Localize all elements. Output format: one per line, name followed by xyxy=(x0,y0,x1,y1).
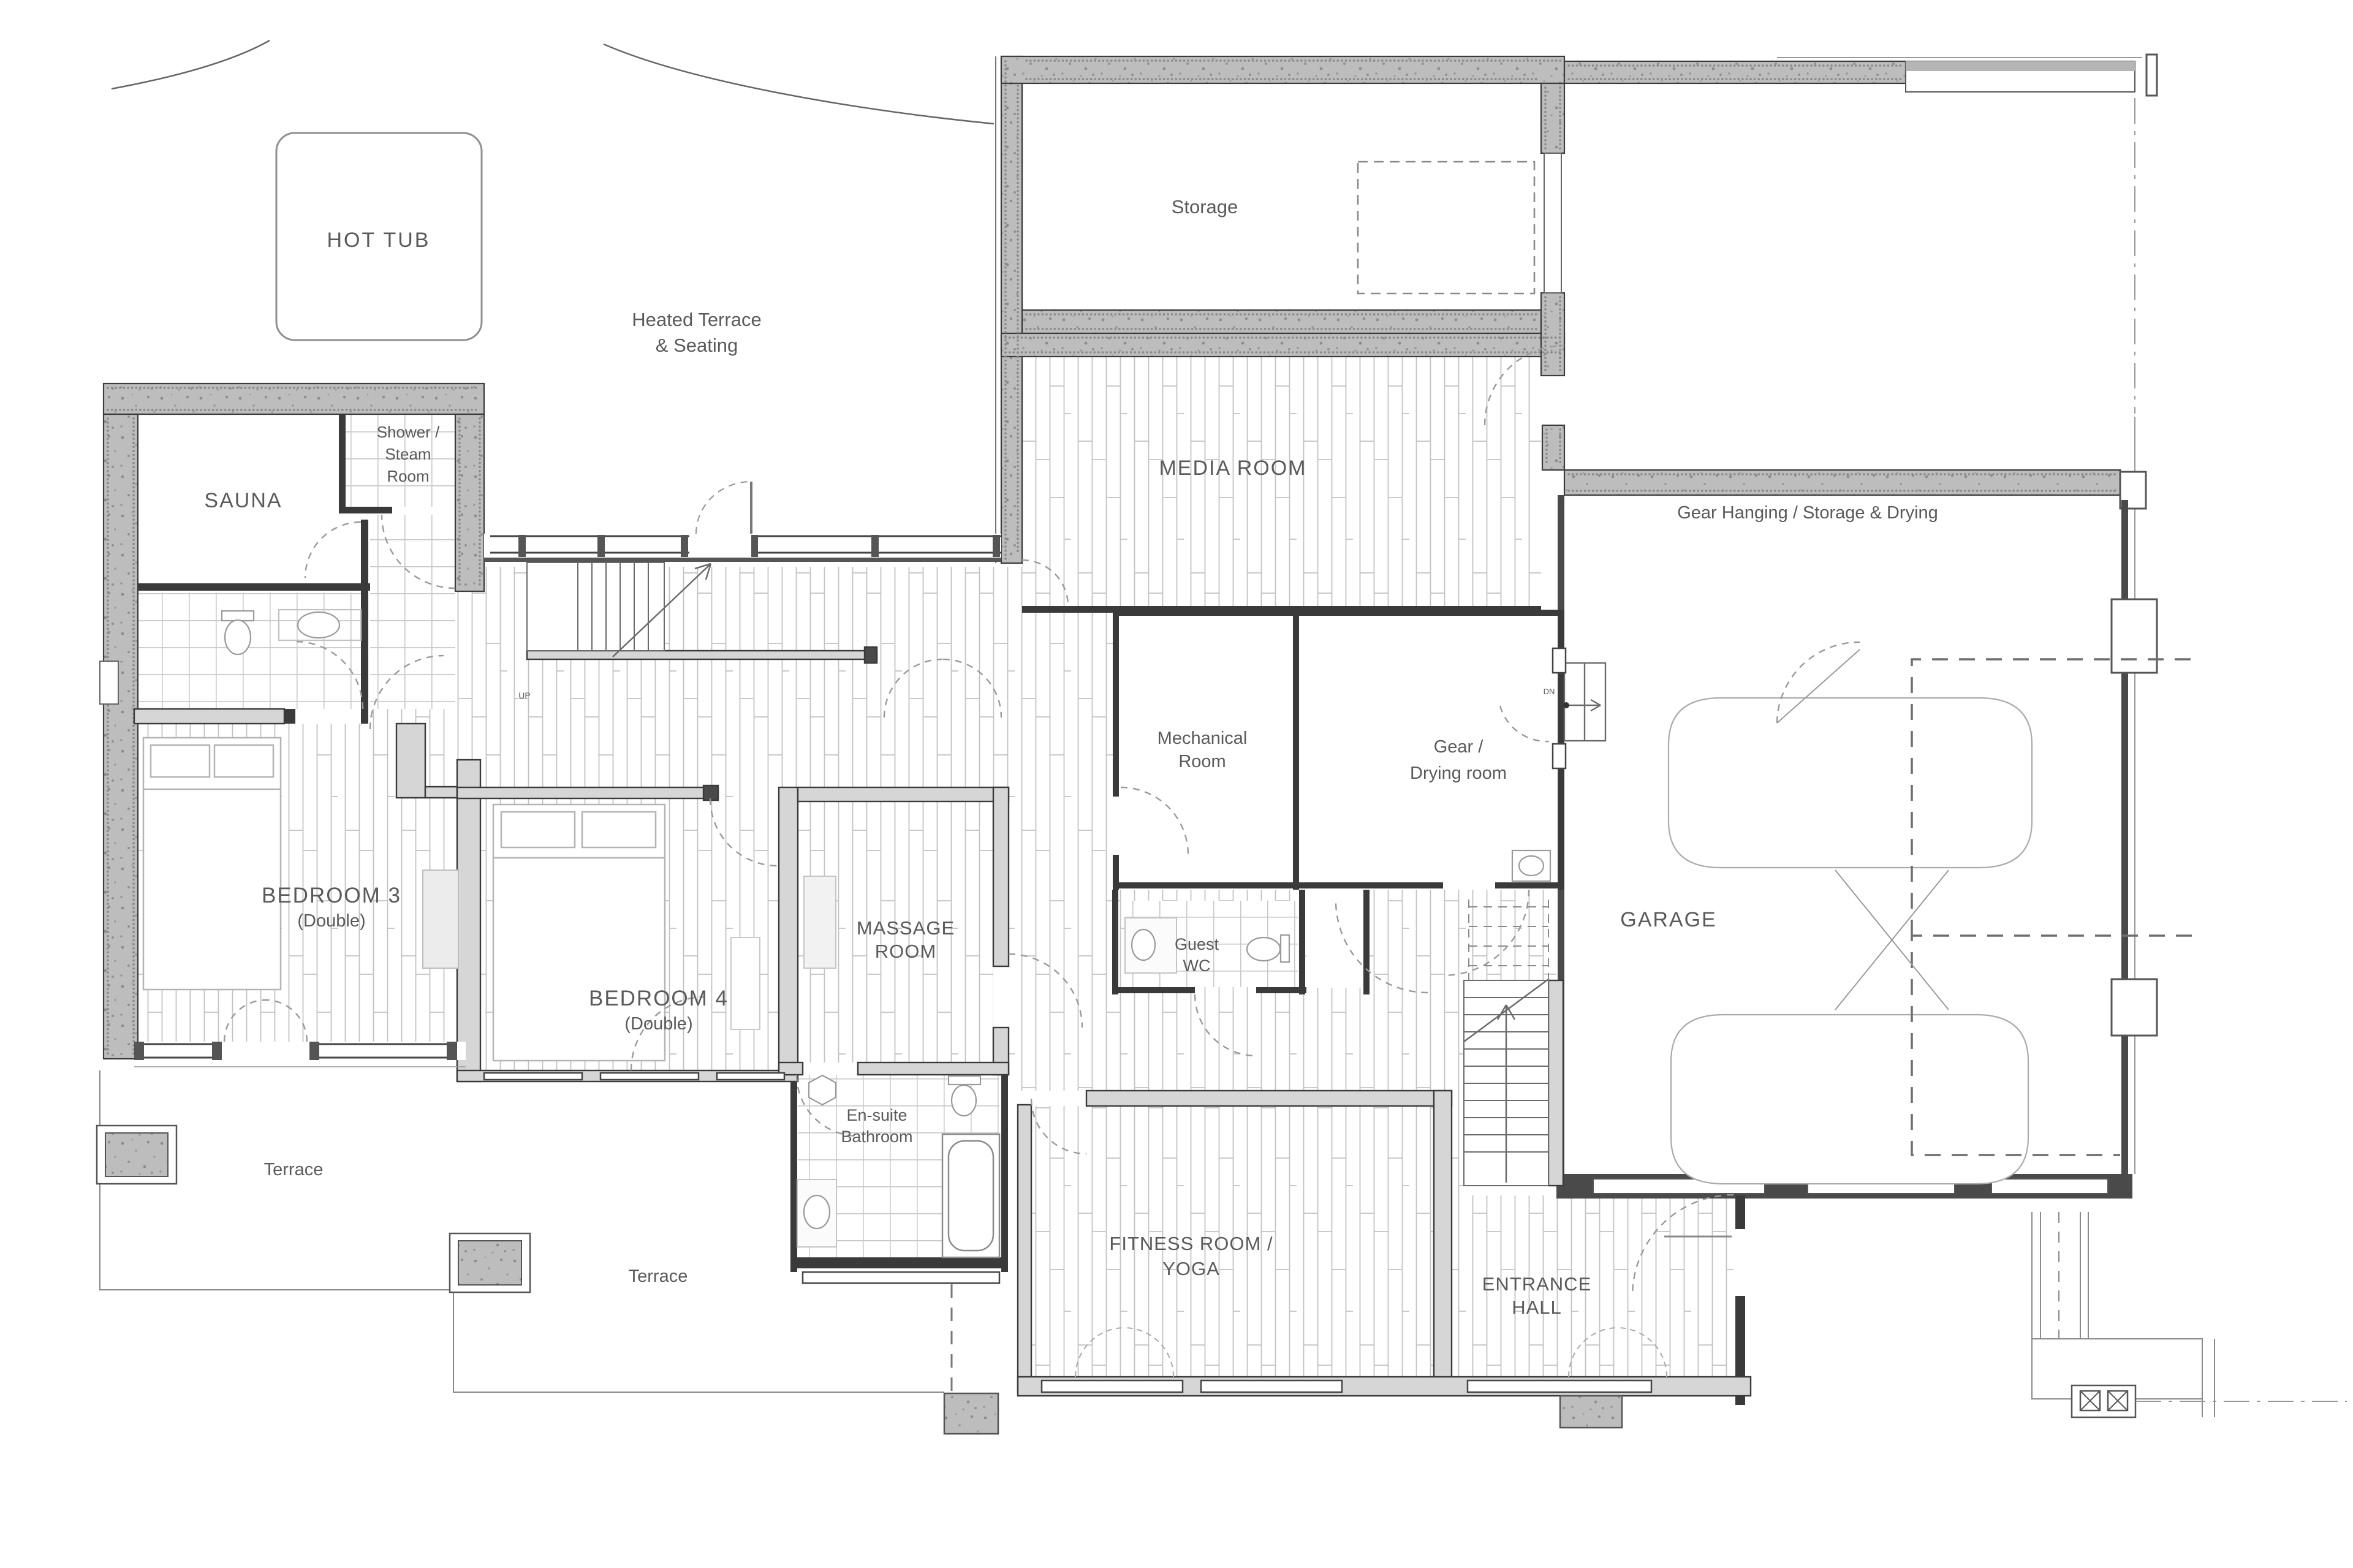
svg-text:WC: WC xyxy=(1183,956,1211,975)
svg-text:MASSAGE: MASSAGE xyxy=(857,917,955,939)
svg-text:Room: Room xyxy=(387,467,429,485)
svg-text:& Seating: & Seating xyxy=(656,335,738,356)
svg-text:(Double): (Double) xyxy=(297,911,365,931)
svg-text:(Double): (Double) xyxy=(624,1014,692,1034)
svg-text:Bathroom: Bathroom xyxy=(841,1127,912,1146)
svg-text:FITNESS ROOM /: FITNESS ROOM / xyxy=(1109,1233,1273,1254)
svg-text:HALL: HALL xyxy=(1512,1297,1562,1318)
svg-text:Gear /: Gear / xyxy=(1434,737,1484,757)
svg-text:Room: Room xyxy=(1178,752,1226,771)
svg-text:GARAGE: GARAGE xyxy=(1620,908,1716,931)
svg-text:Guest: Guest xyxy=(1175,935,1219,953)
svg-text:Heated Terrace: Heated Terrace xyxy=(632,309,761,330)
svg-text:ENTRANCE: ENTRANCE xyxy=(1482,1273,1592,1295)
svg-text:Steam: Steam xyxy=(385,445,431,463)
svg-text:Terrace: Terrace xyxy=(264,1160,324,1180)
svg-text:En-suite: En-suite xyxy=(846,1106,907,1124)
svg-text:ROOM: ROOM xyxy=(875,941,936,962)
svg-text:Shower /: Shower / xyxy=(377,423,440,441)
svg-text:UP: UP xyxy=(518,691,530,700)
svg-text:BEDROOM 3: BEDROOM 3 xyxy=(262,884,401,907)
svg-text:Terrace: Terrace xyxy=(629,1267,688,1286)
svg-text:Mechanical: Mechanical xyxy=(1158,729,1248,748)
svg-text:HOT TUB: HOT TUB xyxy=(327,229,431,252)
svg-text:Storage: Storage xyxy=(1172,196,1238,218)
svg-text:DN: DN xyxy=(1544,687,1555,696)
svg-text:Gear Hanging / Storage & Dryin: Gear Hanging / Storage & Drying xyxy=(1677,503,1938,523)
svg-text:SAUNA: SAUNA xyxy=(204,489,282,512)
svg-text:BEDROOM 4: BEDROOM 4 xyxy=(589,987,729,1010)
svg-text:Drying room: Drying room xyxy=(1410,763,1507,783)
svg-text:MEDIA ROOM: MEDIA ROOM xyxy=(1159,456,1306,480)
svg-text:YOGA: YOGA xyxy=(1162,1258,1220,1279)
